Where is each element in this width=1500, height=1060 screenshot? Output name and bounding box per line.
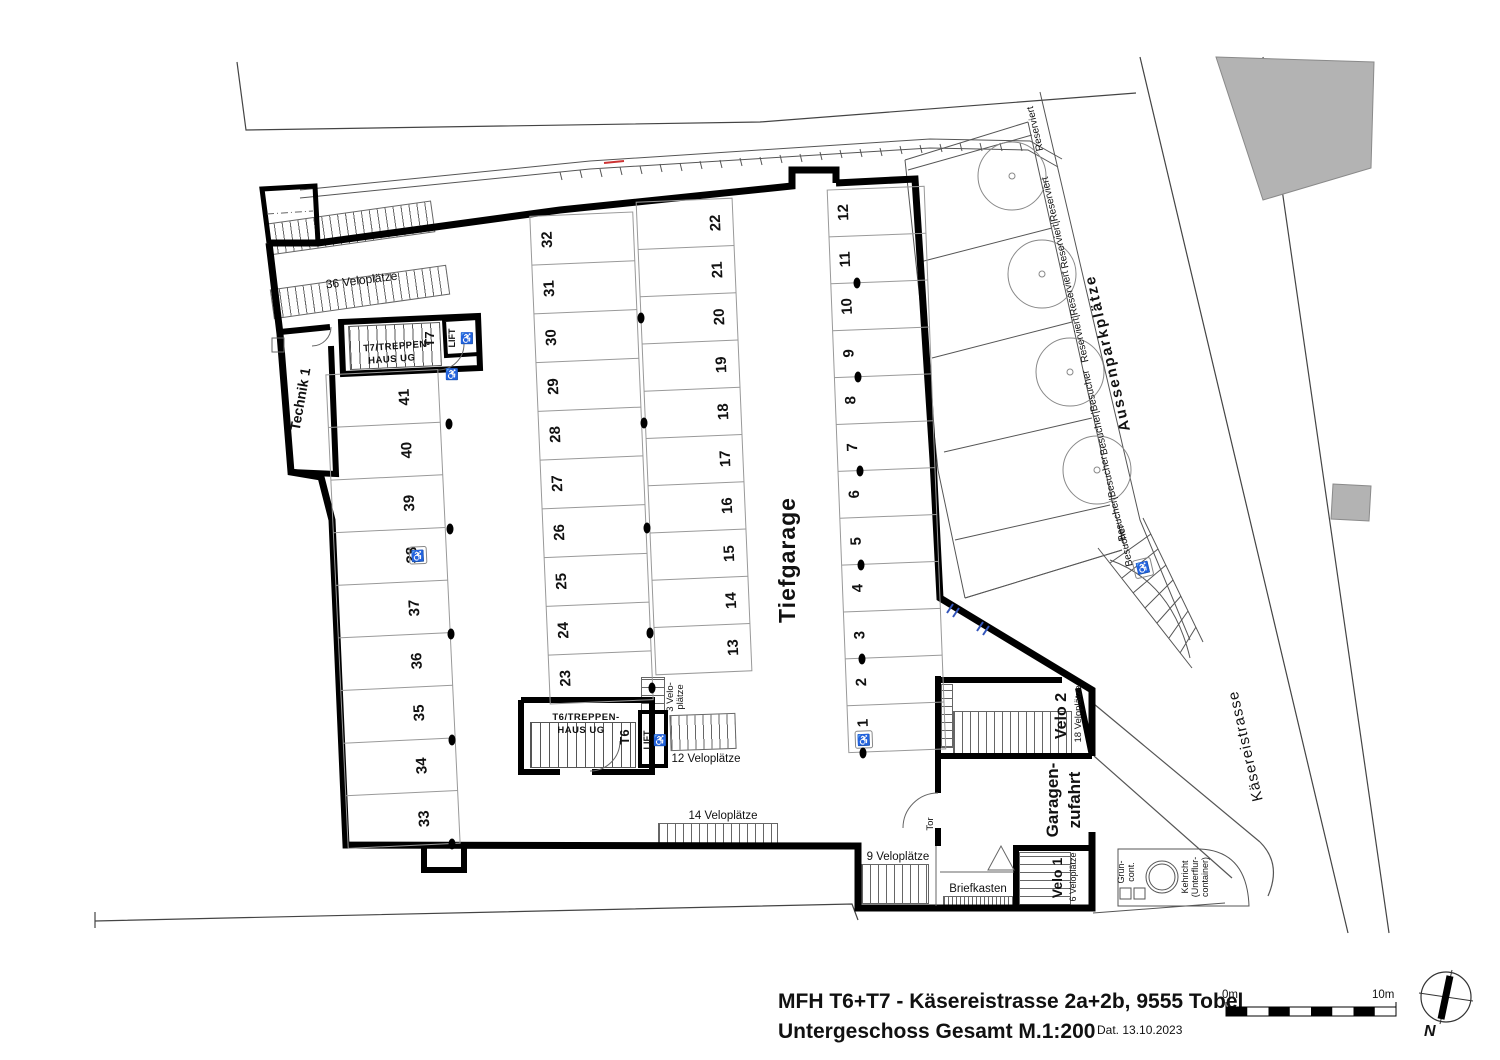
technik-label: Technik 1	[287, 366, 314, 432]
stall-number: 25	[553, 573, 571, 590]
stall-number: 40	[398, 441, 416, 458]
door-arc-t6	[590, 741, 620, 771]
stall-number: 22	[707, 214, 725, 231]
zufahrt-label-1: Garagen-	[1043, 763, 1062, 838]
stall-number: 8	[842, 396, 859, 405]
velo2-label: Velo 2	[1053, 693, 1070, 739]
stall-number: 13	[725, 639, 743, 656]
stall-number: 32	[538, 231, 556, 248]
plan-subtitle: Untergeschoss Gesamt M.1:200	[778, 1020, 1095, 1043]
outdoor-spot-label: Reserviert|Reserviert	[1040, 175, 1072, 269]
neighbor-building-small	[1331, 484, 1371, 521]
stall-number: 26	[551, 524, 569, 541]
stall-number: 27	[549, 475, 567, 492]
structural-columns	[446, 278, 867, 850]
velo1-label: Velo 1	[1049, 858, 1065, 899]
neighbor-building-large	[1216, 57, 1374, 200]
wheelchair-icon: ♿	[653, 734, 667, 747]
stall-column-mid-west: 32 31 30 29 28 27 26 25 24 23	[530, 212, 653, 704]
t6-room-label-2: HAUS UG	[557, 725, 604, 736]
stall-number: 21	[709, 261, 727, 278]
stall-number: 37	[406, 599, 424, 616]
floorplan-canvas: 41 40 39 38 37 36 35 34 33 ♿ 32 31 30	[0, 0, 1500, 1060]
gruen-label-1: Grün-	[1116, 860, 1126, 883]
stall-number: 28	[547, 426, 565, 443]
street-label: Käsereistrasse	[1225, 689, 1267, 803]
stall-number: 14	[723, 591, 741, 609]
stall-number: 35	[411, 704, 429, 721]
stall-number: 20	[711, 308, 729, 325]
stall-number: 18	[715, 403, 733, 420]
underground-container-icon	[1146, 861, 1178, 893]
wheelchair-icon: ♿	[411, 549, 426, 563]
garage-title: Tiefgarage	[774, 497, 800, 623]
t7-room-label-2: HAUS UG	[368, 352, 416, 366]
stall-number: 4	[849, 583, 866, 593]
wheelchair-icon: ♿	[857, 734, 871, 748]
stall-number: 17	[717, 450, 735, 467]
velo1-count: 6 Veloplätze	[1068, 852, 1078, 901]
t7-room-label-1: T7/TREPPEN-	[363, 339, 431, 355]
t6-lift-label: LIFT	[642, 730, 652, 749]
stall-number: 11	[837, 251, 855, 268]
stall-number: 12	[835, 204, 853, 221]
kehricht-label-3: container)	[1200, 857, 1210, 897]
light-well-south	[424, 845, 464, 870]
briefkasten-label: Briefkasten	[949, 883, 1007, 895]
street-edge-west	[1140, 57, 1348, 933]
velo12-label: 12 Veloplätze	[671, 753, 740, 765]
stall-number: 33	[416, 810, 434, 827]
green-container-icon	[1134, 888, 1145, 899]
stall-number: 6	[846, 490, 863, 499]
scale-bar: 0m 10m	[1222, 989, 1396, 1016]
stall-column-east: 12 11 10 9 8 7 6 5 4 3 2 1 ♿	[827, 186, 946, 752]
stall-number: 36	[408, 652, 426, 669]
stall-number: 39	[401, 494, 419, 511]
plan-date: Dat. 13.10.2023	[1097, 1023, 1183, 1037]
stall-number: 5	[848, 537, 865, 546]
stall-number: 31	[541, 280, 559, 297]
kehricht-label-2: (Unterflur-	[1190, 857, 1200, 898]
scale-ten-label: 10m	[1372, 989, 1394, 1001]
t7-lift-label: LIFT	[447, 328, 457, 347]
stall-number: 41	[396, 388, 414, 405]
north-arrow: N	[1419, 970, 1473, 1040]
stall-column-mid-east: 22 21 20 19 18 17 16 15 14 13	[636, 198, 752, 675]
stall-number: 10	[838, 298, 856, 315]
zufahrt-label-2: zufahrt	[1065, 771, 1084, 828]
wheelchair-icon: ♿	[460, 332, 474, 345]
outdoor-spot-label: Besucher	[1115, 523, 1135, 567]
stall-number: 3	[851, 631, 868, 640]
green-container-icon	[1120, 888, 1131, 899]
vestibule-room	[262, 186, 318, 243]
stall-number: 34	[413, 756, 431, 774]
stall-number: 24	[555, 621, 573, 639]
wheelchair-icon: ♿	[1135, 561, 1152, 577]
gruen-label-2: cont.	[1126, 862, 1136, 882]
t7-label: T7	[422, 331, 437, 346]
velo2-count: 18 Veloplätze	[1073, 685, 1084, 742]
footpath-strip	[300, 139, 1062, 198]
t6-label: T6	[617, 729, 632, 744]
kehricht-label-1: Kehricht	[1180, 860, 1190, 894]
plan-title: MFH T6+T7 - Käsereistrasse 2a+2b, 9555 T…	[778, 990, 1243, 1013]
stall-number: 15	[721, 545, 739, 562]
stall-number: 2	[853, 678, 870, 687]
wheelchair-icon: ♿	[445, 368, 459, 381]
t6-stair-room	[521, 700, 652, 772]
t6-room-label-1: T6/TREPPEN-	[552, 712, 619, 723]
stall-number: 16	[719, 497, 737, 514]
velo36-label: 36 Veloplätze	[325, 269, 399, 292]
scale-zero-label: 0m	[1222, 989, 1238, 1001]
red-survey-mark	[604, 161, 624, 163]
velo14-label: 14 Veloplätze	[688, 810, 757, 822]
velo9-label: 9 Veloplätze	[867, 851, 930, 863]
stall-number: 9	[840, 349, 857, 358]
north-label: N	[1424, 1023, 1436, 1040]
stall-number: 29	[545, 378, 563, 395]
north-needle	[1441, 976, 1450, 1019]
vestibule-dash	[267, 211, 313, 214]
stall-number: 7	[844, 443, 861, 452]
stall-number: 30	[543, 329, 561, 346]
stall-number: 1	[855, 719, 872, 728]
stall-number: 23	[557, 670, 575, 687]
outdoor-stairs	[1098, 518, 1203, 668]
outdoor-spot-label: Reserviert	[1025, 105, 1046, 152]
tor-label: Tor	[925, 817, 936, 830]
stall-number: 19	[713, 356, 731, 373]
plan-linework: 41 40 39 38 37 36 35 34 33 ♿ 32 31 30	[0, 0, 1500, 1060]
velo3-label-2: plätze	[675, 684, 686, 709]
